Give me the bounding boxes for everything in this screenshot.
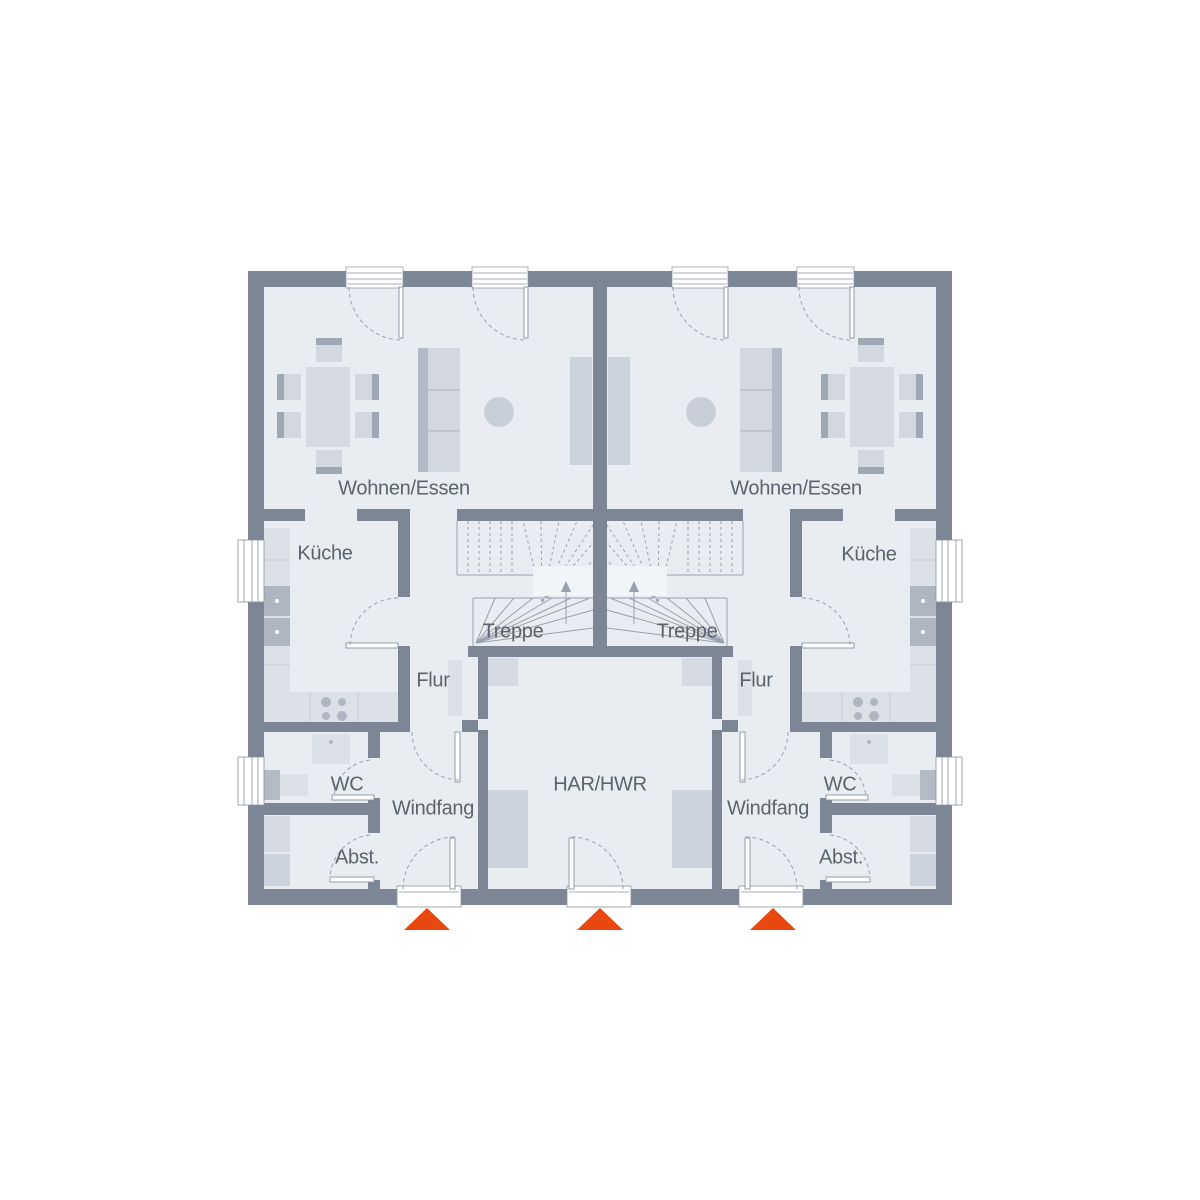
room-label-living-left: Wohnen/Essen bbox=[338, 478, 470, 501]
room-label-living-right: Wohnen/Essen bbox=[730, 478, 862, 501]
room-label-kitchen-left: Küche bbox=[297, 543, 352, 566]
room-label-wc-left: WC bbox=[331, 774, 364, 797]
entrance-thresholds bbox=[397, 886, 803, 907]
room-label-utility: HAR/HWR bbox=[553, 774, 646, 797]
room-label-hall-right: Flur bbox=[739, 670, 772, 693]
room-label-storage-left: Abst. bbox=[335, 847, 379, 870]
entrance-arrow-icon bbox=[577, 908, 623, 930]
room-label-vestibule-left: Windfang bbox=[392, 798, 474, 821]
entrance-arrow-icon bbox=[404, 908, 450, 930]
party-wall bbox=[593, 271, 607, 657]
room-label-hall-left: Flur bbox=[416, 670, 449, 693]
room-label-wc-right: WC bbox=[824, 774, 857, 797]
room-label-stairs-left: Treppe bbox=[483, 621, 544, 644]
entrance-arrow-icon bbox=[750, 908, 796, 930]
entrance-markers bbox=[404, 908, 796, 930]
room-label-vestibule-right: Windfang bbox=[727, 798, 809, 821]
floor-plan-page: Wohnen/Essen Wohnen/Essen Küche Küche Tr… bbox=[0, 0, 1200, 1200]
room-label-storage-right: Abst. bbox=[819, 847, 863, 870]
floor-plan-drawing bbox=[0, 0, 1200, 1200]
room-label-kitchen-right: Küche bbox=[841, 544, 896, 567]
room-label-stairs-right: Treppe bbox=[657, 621, 718, 644]
